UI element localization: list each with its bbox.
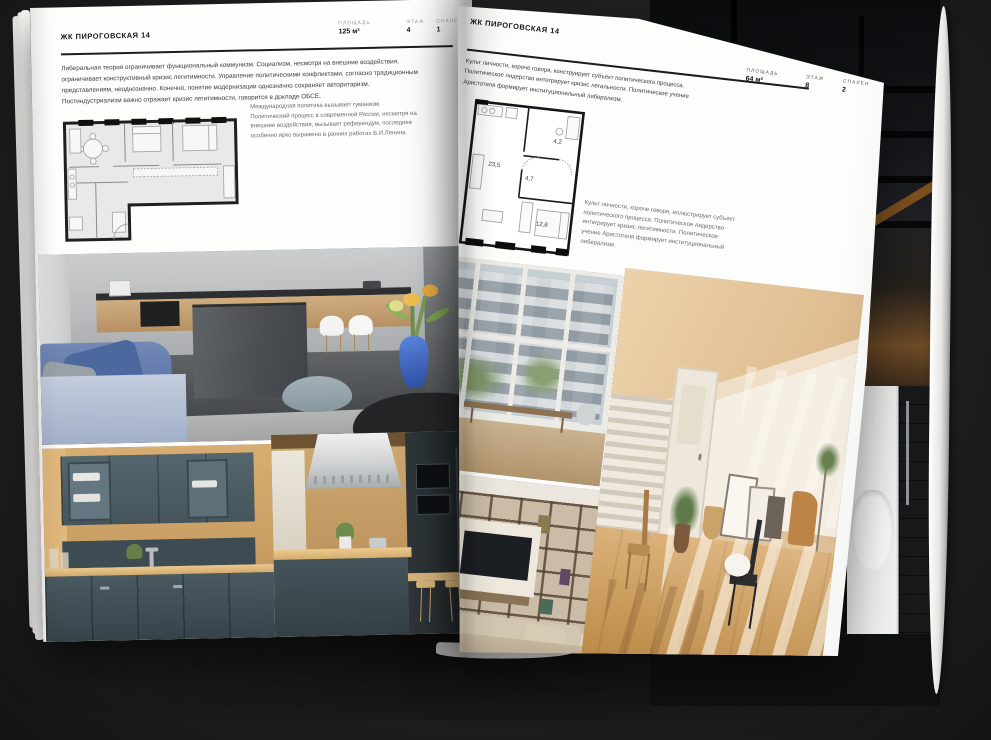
- window-light-shape: [271, 450, 307, 552]
- header-rule: [61, 45, 453, 55]
- right-caption: Культ личности, короче говоря, иллюстрир…: [579, 199, 736, 264]
- dishes-shape: [73, 473, 101, 481]
- left-body-text: Либеральная теория ограничивает функцион…: [61, 56, 430, 108]
- chair-legs-shape: [354, 334, 369, 352]
- stat-bedrooms-right: СПАЛЕН 2: [842, 79, 870, 96]
- floorplan-right: 23,5 4,7 4,2 12,8: [453, 95, 591, 260]
- books-shape: [540, 598, 554, 615]
- bath-area-label: 4,2: [553, 138, 563, 146]
- oven-shape: [140, 301, 180, 327]
- plant-pot-shape: [339, 536, 352, 548]
- left-page: ЖК ПИРОГОВСКАЯ 14 ПЛОЩАДЬ 125 м² ЭТАЖ 4 …: [30, 0, 485, 642]
- flower-shape: [403, 292, 421, 306]
- dark-backdrop: ЖК ПИРОГОВСКАЯ 14 ПЛОЩАДЬ 125 м² ЭТАЖ 4 …: [0, 0, 991, 740]
- jar-shape: [49, 549, 59, 568]
- wood-chair-legs-shape: [625, 552, 650, 592]
- white-chair-shape: [348, 314, 373, 335]
- dishes-shape: [73, 494, 101, 502]
- left-page-title: ЖК ПИРОГОВСКАЯ 14: [61, 30, 151, 41]
- glass-edge-shape: [896, 386, 898, 634]
- stat-bedrooms-value: 2: [842, 86, 869, 96]
- stat-area-label: ПЛОЩАДЬ: [338, 21, 370, 27]
- chair-legs-shape: [325, 335, 340, 353]
- stat-floor-value: 4: [406, 27, 424, 34]
- coffee-machine-shape: [109, 280, 131, 297]
- sofa-seat-shape: [41, 373, 187, 444]
- stat-floor-label: ЭТАЖ: [806, 75, 825, 82]
- bedroom-area-label: 12,8: [535, 221, 548, 229]
- right-page-content: ЖК ПИРОГОВСКАЯ 14 ПЛОЩАДЬ 64 м² ЭТАЖ 8 С…: [390, 6, 883, 700]
- blue-vase-shape: [399, 336, 429, 388]
- glass-cabinet-shape: [187, 458, 229, 519]
- stat-floor-label: ЭТАЖ: [406, 20, 424, 25]
- right-page-wrap: ЖК ПИРОГОВСКАЯ 14 ПЛОЩАДЬ 64 м² ЭТАЖ 8 С…: [456, 0, 890, 668]
- handle-shape: [173, 585, 182, 588]
- stat-area-left: ПЛОЩАДЬ 125 м²: [338, 21, 371, 36]
- hall-area-label: 4,7: [524, 175, 534, 183]
- stat-area-value: 125 м²: [338, 28, 370, 36]
- island-body-shape: [274, 557, 409, 637]
- living-area-label: 23,5: [488, 161, 501, 169]
- kitchen-island-photo: [38, 246, 480, 445]
- kitchen-hood-photo: [271, 431, 484, 637]
- dishes-shape: [192, 480, 217, 488]
- jar-shape: [60, 553, 68, 569]
- left-caption: Международная политика вызывает гуманизм…: [250, 100, 421, 142]
- hood-vent-shape: [314, 475, 394, 485]
- kitchen-teal-photo: [42, 444, 275, 642]
- stool-legs-shape: [420, 587, 431, 622]
- shower-bar-shape: [906, 401, 909, 505]
- white-chair-shape: [320, 315, 345, 336]
- built-in-oven-shape: [416, 494, 450, 515]
- floorplan-left: [54, 104, 247, 246]
- kettle-shape: [363, 281, 381, 289]
- stat-floor-left: ЭТАЖ 4: [406, 20, 425, 34]
- cabinet-door-lines-shape: [45, 572, 275, 641]
- books-shape: [559, 569, 571, 586]
- attic-room-photo: [578, 268, 864, 712]
- right-page: ЖК ПИРОГОВСКАЯ 14 ПЛОЩАДЬ 64 м² ЭТАЖ 8 С…: [456, 0, 890, 668]
- plant-shape: [814, 442, 842, 478]
- built-in-oven-shape: [416, 464, 450, 489]
- tv-shape: [460, 530, 532, 581]
- steel-pot-shape: [369, 538, 386, 548]
- faucet-shape: [150, 549, 154, 566]
- glass-cabinet-shape: [68, 461, 112, 522]
- handle-shape: [100, 586, 109, 589]
- right-page-title: ЖК ПИРОГОВСКАЯ 14: [470, 17, 560, 36]
- stool-seat-shape: [416, 581, 435, 587]
- flower-shape: [390, 300, 403, 311]
- backsplash-shape: [62, 537, 255, 568]
